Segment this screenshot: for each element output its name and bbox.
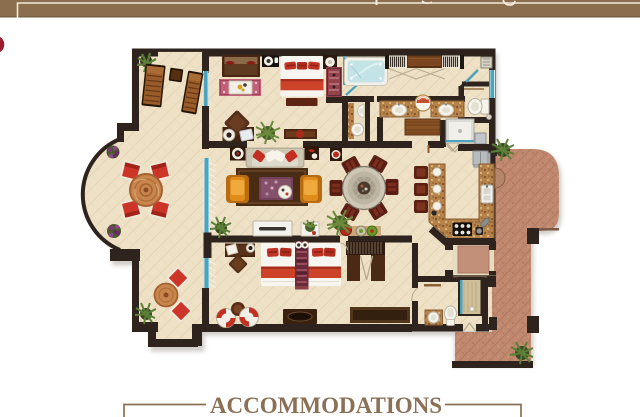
svg-text:ACCOMMODATIONS: ACCOMMODATIONS (210, 393, 442, 417)
